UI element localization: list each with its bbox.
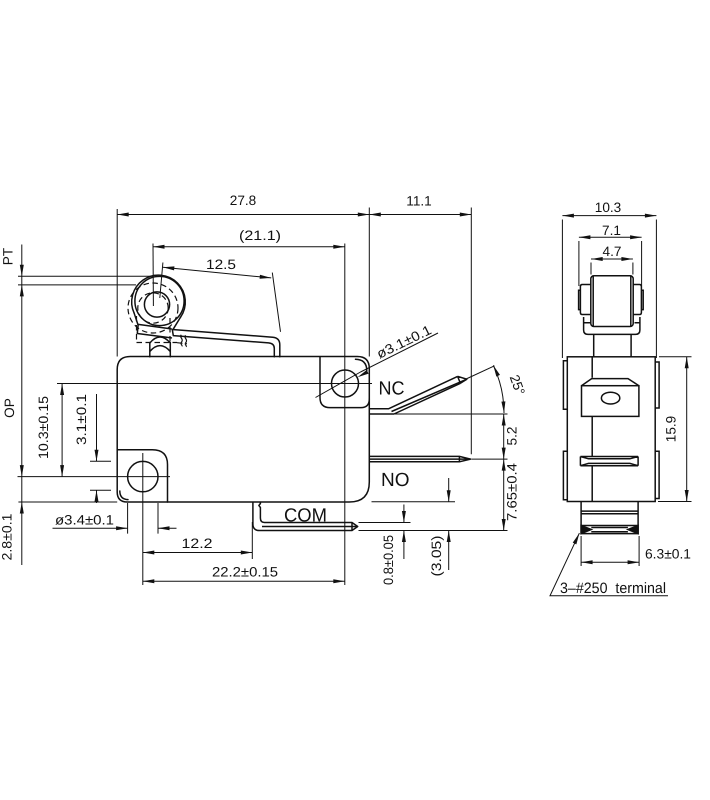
- svg-text:7.1: 7.1: [602, 223, 621, 238]
- svg-text:COM: COM: [284, 506, 327, 527]
- svg-text:5.2: 5.2: [505, 427, 520, 446]
- svg-text:(21.1): (21.1): [239, 228, 281, 243]
- svg-text:7.65±0.4: 7.65±0.4: [505, 463, 520, 521]
- svg-text:22.2±0.15: 22.2±0.15: [212, 565, 278, 580]
- svg-text:6.3±0.1: 6.3±0.1: [645, 547, 691, 562]
- svg-text:27.8: 27.8: [230, 193, 256, 208]
- svg-text:4.7: 4.7: [603, 244, 622, 259]
- svg-text:15.9: 15.9: [664, 416, 679, 442]
- svg-text:10.3±0.15: 10.3±0.15: [36, 396, 51, 459]
- svg-text:11.1: 11.1: [406, 194, 431, 209]
- svg-text:NO: NO: [381, 470, 410, 491]
- svg-text:NC: NC: [379, 379, 405, 400]
- svg-text:3–#250 terminal: 3–#250 terminal: [560, 580, 666, 597]
- svg-text:0.8±0.05: 0.8±0.05: [381, 535, 396, 585]
- svg-text:PT: PT: [1, 248, 16, 265]
- svg-text:3.1±0.1: 3.1±0.1: [74, 394, 89, 445]
- svg-text:12.2: 12.2: [182, 536, 213, 551]
- svg-text:(3.05): (3.05): [429, 536, 444, 577]
- svg-text:OP: OP: [2, 398, 17, 418]
- svg-text:2.8±0.1: 2.8±0.1: [0, 514, 15, 561]
- svg-text:ø3.4±0.1: ø3.4±0.1: [55, 513, 114, 528]
- svg-text:12.5: 12.5: [206, 257, 236, 272]
- svg-text:10.3: 10.3: [595, 200, 621, 215]
